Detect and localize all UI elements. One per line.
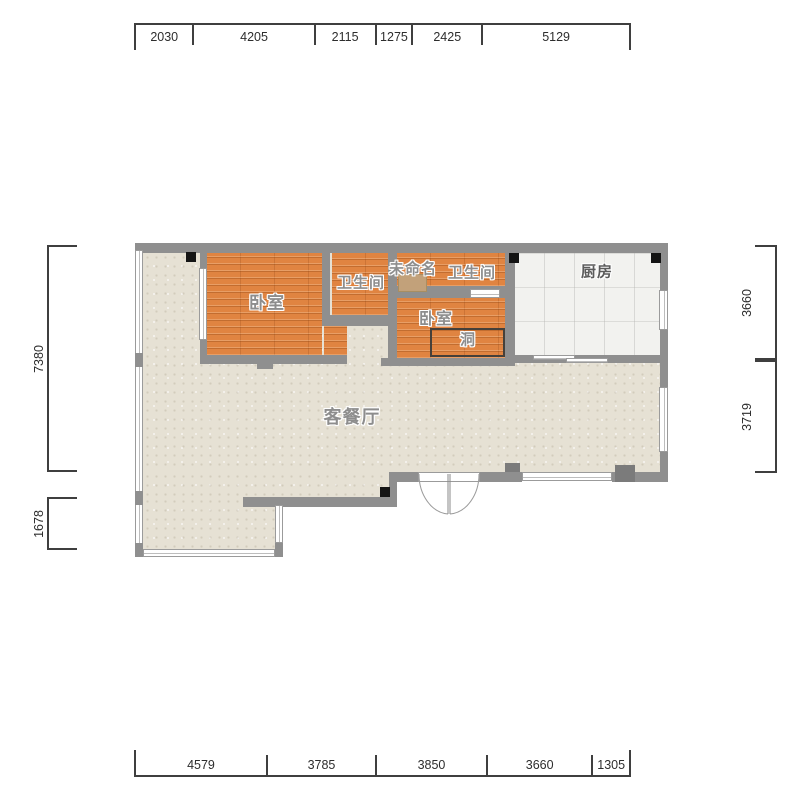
wall-bottom-left-of-door <box>397 472 418 482</box>
wall-left-segment-3 <box>135 543 143 557</box>
dimension-bracket-left-7380: 7380 <box>47 245 77 472</box>
door-bedroom1-sliding[interactable] <box>199 268 207 340</box>
dimension-value: 3850 <box>418 756 446 774</box>
entry-door-swing-icon <box>418 474 480 518</box>
dimension-value: 4579 <box>187 756 215 774</box>
door-kitchen-sliding-b[interactable] <box>566 358 608 363</box>
corner-marker-icon <box>509 253 519 263</box>
wall-left-segment-2 <box>135 491 143 505</box>
bathroom2-label: 卫生间 <box>448 262 496 283</box>
window-kitchen-right <box>659 290 668 330</box>
corner-marker-icon <box>380 487 390 497</box>
dimension-bracket-right-3719: 3719 <box>755 360 777 473</box>
wall-bedroom1-bottom <box>200 355 347 364</box>
floor-plan-canvas: 卧室 卫生间 未命名 卫生间 厨房 卧室 洞 客餐厅 2030420521151… <box>0 0 800 800</box>
wall-bedroom1-stub <box>257 364 273 369</box>
dimension-value: 2030 <box>150 28 178 46</box>
dimension-value: 3785 <box>308 756 336 774</box>
hole-label: 洞 <box>460 329 476 350</box>
bedroom2-label: 卧室 <box>419 305 453 329</box>
wall-pillar-stub-a <box>505 463 520 472</box>
bedroom1-label: 卧室 <box>249 289 285 314</box>
dimension-value: 2425 <box>433 28 461 46</box>
bathroom1-label: 卫生间 <box>337 272 385 293</box>
dimension-value: 1275 <box>380 28 408 46</box>
wall-bottom-mid <box>480 472 522 482</box>
dimension-value: 3660 <box>526 756 554 774</box>
dimension-value: 2115 <box>332 28 359 46</box>
kitchen-label: 厨房 <box>581 261 613 282</box>
dimension-value: 1678 <box>32 510 46 538</box>
dimension-bracket-left-1678: 1678 <box>47 497 77 550</box>
wall-top <box>135 243 668 253</box>
wall-bedroom2-bottom <box>381 358 515 366</box>
dimension-value: 3719 <box>740 403 754 431</box>
wall-balcony-pillar <box>275 543 283 557</box>
dimension-value: 7380 <box>32 345 46 373</box>
bedroom1-door-gap-floor <box>324 326 347 355</box>
wall-bottom-jog <box>389 472 397 507</box>
wall-left-segment-1 <box>135 353 143 367</box>
dimension-bracket-right-3660: 3660 <box>755 245 777 360</box>
dimension-value: 1305 <box>597 756 625 774</box>
dimension-value: 5129 <box>542 28 570 46</box>
living-room-label: 客餐厅 <box>324 403 381 429</box>
dimension-value: 4205 <box>240 28 268 46</box>
corner-marker-icon <box>186 252 196 262</box>
window-balcony-bottom <box>143 549 275 557</box>
window-living-right <box>659 387 668 452</box>
wall-bathroom1-bottom <box>327 315 388 326</box>
corner-marker-icon <box>651 253 661 263</box>
dimension-value: 3660 <box>740 289 754 317</box>
living-room-floor-lower[interactable] <box>143 472 389 497</box>
unnamed-room-label: 未命名 <box>389 258 437 279</box>
window-balcony-right <box>275 505 283 543</box>
window-bathroom2 <box>470 289 500 298</box>
wall-lower-horizontal <box>243 497 397 507</box>
window-left-wall <box>135 250 143 557</box>
window-living-bottom <box>522 472 612 481</box>
wall-pillar-stub-b <box>615 465 635 482</box>
